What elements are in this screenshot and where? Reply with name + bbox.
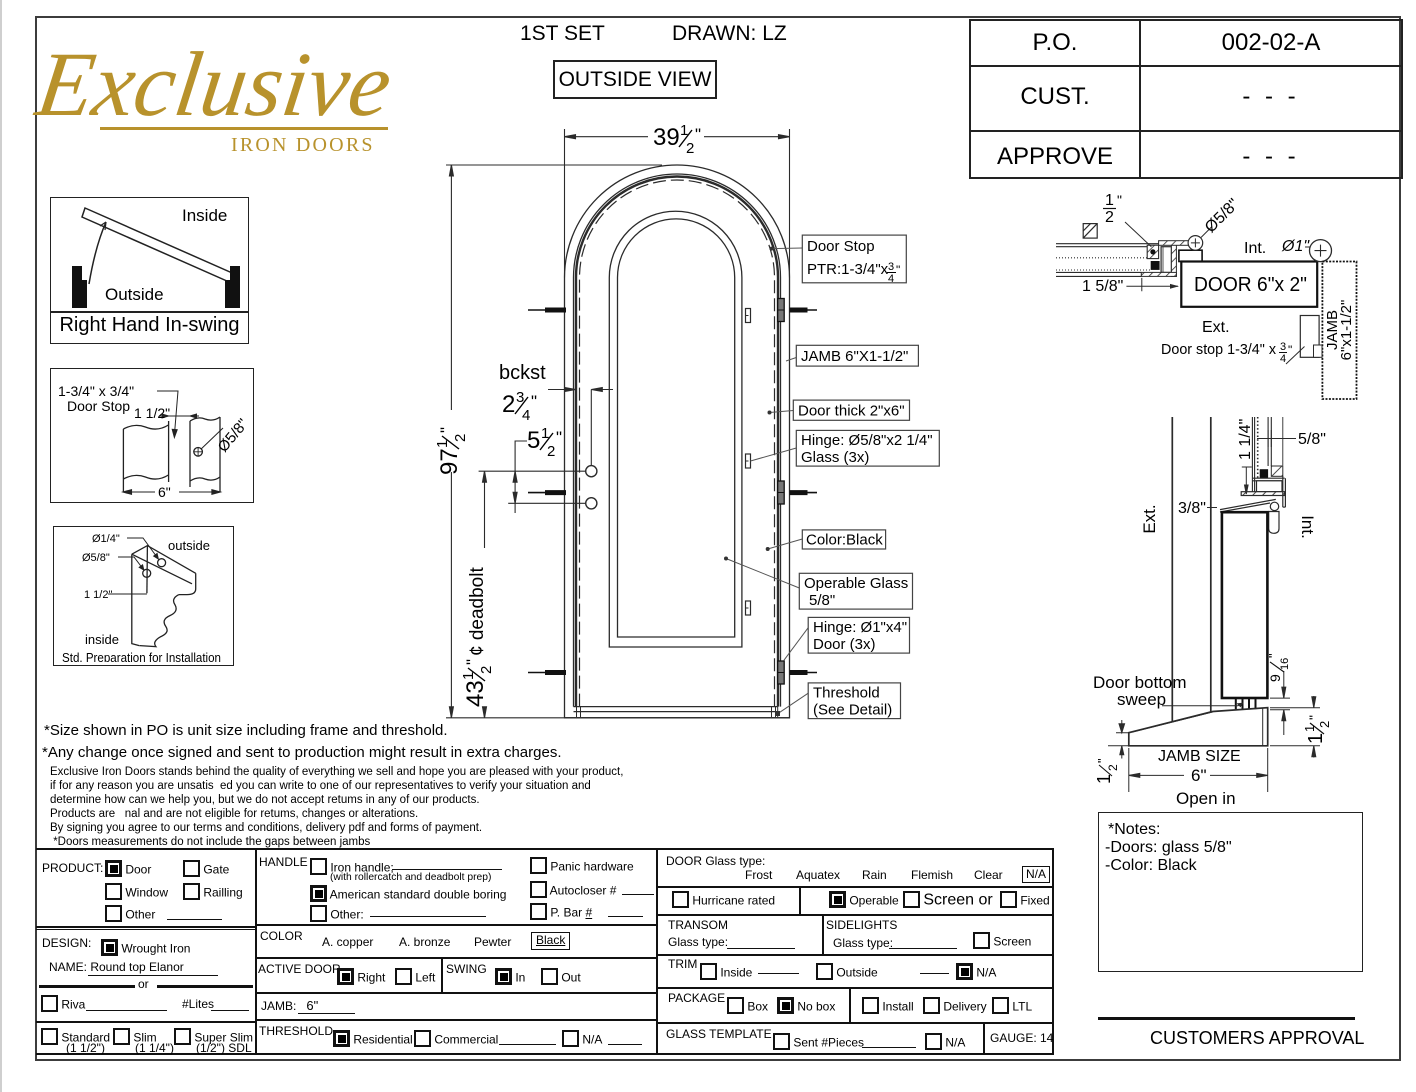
svg-text:Threshold: Threshold [813,685,880,702]
svg-text:outside: outside [168,538,210,553]
svg-text:4: 4 [888,273,894,285]
svg-text:Glass (3x): Glass (3x) [801,449,869,466]
svg-text:6": 6" [1191,766,1207,785]
svg-text:1: 1 [1302,725,1317,732]
svg-text:Hinge: Ø5/8"x2 1/4": Hinge: Ø5/8"x2 1/4" [801,432,933,449]
svg-text:1-3/4" x 3/4": 1-3/4" x 3/4" [58,383,134,399]
svg-text:3/8": 3/8" [1178,500,1206,517]
svg-text:": " [1117,192,1122,208]
svg-text:5: 5 [527,427,540,454]
svg-text:4: 4 [522,407,530,424]
svg-text:Door Stop: Door Stop [807,238,875,255]
svg-text:Outside: Outside [105,285,164,304]
svg-text:Color:Black: Color:Black [806,532,883,549]
svg-text:5/8": 5/8" [1298,431,1326,448]
svg-text:sweep: sweep [1117,690,1166,709]
svg-text:2: 2 [1106,764,1120,771]
svg-text:Hinge: Ø1"x4": Hinge: Ø1"x4" [813,619,907,636]
svg-text:Ø5/8": Ø5/8" [82,552,110,564]
svg-text:": " [463,659,482,665]
svg-text:1 5/8": 1 5/8" [1082,278,1123,295]
svg-text:": " [1306,715,1322,720]
svg-text:4: 4 [1280,353,1286,365]
svg-text:": " [896,263,900,277]
svg-text:": " [531,392,537,411]
svg-text:1 1/2": 1 1/2" [84,589,112,601]
svg-text:2: 2 [452,434,469,442]
svg-text:5/8": 5/8" [809,592,835,609]
svg-text:Ø1/4": Ø1/4" [92,533,120,545]
svg-text:Inside: Inside [182,206,227,225]
svg-text:": " [1266,653,1281,658]
svg-text:": " [437,427,456,433]
svg-text:Open in: Open in [1176,789,1236,808]
svg-text:1: 1 [1305,733,1327,744]
svg-text:1: 1 [1105,192,1114,209]
svg-text:2: 2 [547,443,555,460]
svg-text:Ext.: Ext. [1140,504,1159,533]
svg-text:3: 3 [888,261,894,273]
svg-text:Door stop 1-3/4" x: Door stop 1-3/4" x [1161,342,1277,358]
svg-text:": " [1095,758,1110,763]
svg-text:Operable Glass: Operable Glass [804,575,908,592]
svg-text:JAMB 6"X1-1/2": JAMB 6"X1-1/2" [801,348,908,365]
svg-text:Int.: Int. [1298,515,1317,539]
svg-text:Door Stop: Door Stop [67,398,130,414]
svg-text:Door (3x): Door (3x) [813,636,876,653]
svg-text:PTR:1-3/4"x: PTR:1-3/4"x [807,261,889,278]
svg-text:1 1/4": 1 1/4" [1237,419,1254,460]
svg-text:43: 43 [462,680,489,707]
svg-text:1 1/2": 1 1/2" [134,405,170,421]
svg-text:JAMB SIZE: JAMB SIZE [1158,748,1241,765]
svg-text:16: 16 [1279,658,1291,670]
svg-text:6"x1-1/2": 6"x1-1/2" [1338,300,1355,361]
svg-text:¢ deadbolt: ¢ deadbolt [467,567,488,656]
svg-text:DOOR 6"x 2": DOOR 6"x 2" [1194,274,1307,296]
svg-text:3: 3 [1280,341,1286,353]
svg-text:2: 2 [1317,721,1332,728]
svg-text:2: 2 [478,666,495,674]
svg-text:2: 2 [686,140,694,157]
svg-text:": " [1288,343,1292,357]
svg-text:6": 6" [158,484,171,499]
svg-text:9: 9 [1267,674,1283,682]
svg-text:Ext.: Ext. [1202,319,1230,336]
svg-text:inside: inside [85,632,119,647]
svg-text:(See Detail): (See Detail) [813,702,892,719]
svg-text:Door thick 2"x6": Door thick 2"x6" [798,403,905,420]
svg-text:": " [695,125,701,144]
svg-text:bckst: bckst [499,362,546,384]
svg-text:39: 39 [653,124,680,151]
svg-text:Int.: Int. [1244,240,1266,257]
svg-text:2: 2 [1105,209,1114,226]
svg-text:Ø5/8": Ø5/8" [1202,196,1243,237]
svg-text:2: 2 [502,391,515,418]
svg-text:97: 97 [436,448,463,475]
svg-text:Std. Preparation for Installat: Std. Preparation for Installation [62,651,221,662]
svg-text:": " [556,428,562,447]
